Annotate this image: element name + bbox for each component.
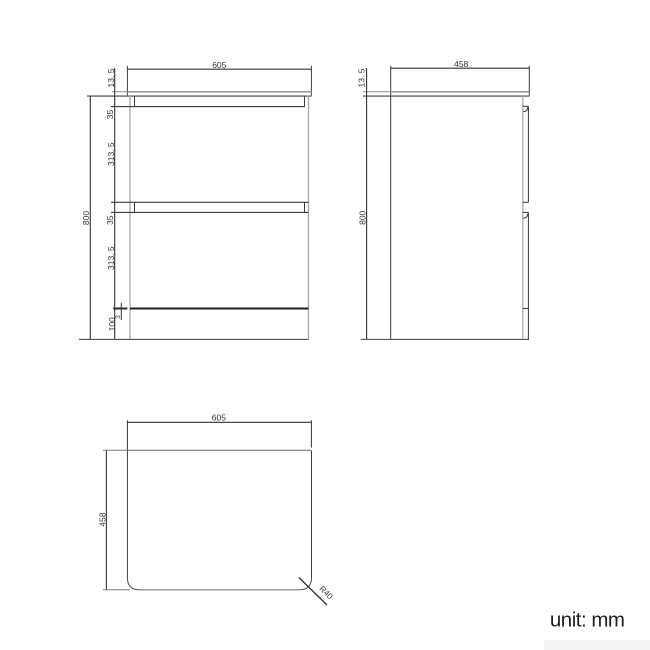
svg-text:3: 3 <box>115 315 122 319</box>
svg-text:800: 800 <box>357 210 367 224</box>
svg-text:35: 35 <box>105 215 115 225</box>
svg-text:13. 5: 13. 5 <box>356 68 366 87</box>
svg-text:unit: mm: unit: mm <box>550 609 625 632</box>
svg-text:605: 605 <box>212 60 226 70</box>
svg-text:313. 5: 313. 5 <box>106 142 116 166</box>
svg-text:458: 458 <box>97 512 107 526</box>
svg-text:458: 458 <box>454 59 468 69</box>
svg-text:13. 5: 13. 5 <box>106 68 116 87</box>
svg-text:35: 35 <box>105 110 115 120</box>
svg-text:313. 5: 313. 5 <box>106 246 116 270</box>
svg-text:800: 800 <box>81 211 91 225</box>
svg-text:605: 605 <box>212 412 226 422</box>
